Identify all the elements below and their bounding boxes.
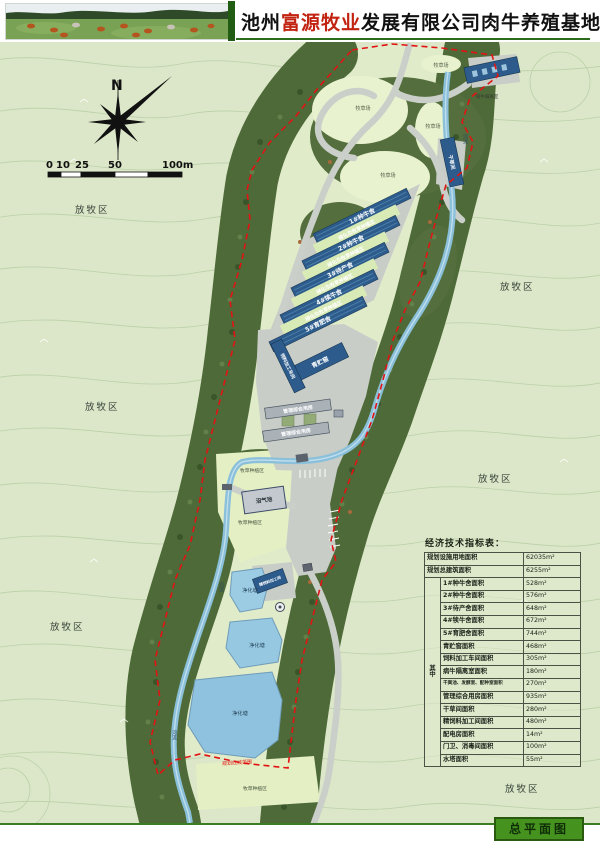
row-value: 648m² [524,603,581,616]
table-row: 4#犊牛舍面积 672m² [425,615,581,628]
planting-area-label-1: 牧草种植区 [240,467,264,474]
row-value: 14m² [524,729,581,742]
row-value: 935m² [524,691,581,704]
river-label-3: 河流 [171,729,177,741]
page: 池州富源牧业发展有限公司肉牛养殖基地规划 [0,0,600,850]
row-name: 4#犊牛舍面积 [441,615,524,628]
footer: 总平面图 [0,823,600,850]
scale-bar: 0 10 25 50 100m [46,160,193,177]
among-label: 其中 [425,578,441,767]
table-row: 饲料加工车间面积 305m² [425,653,581,666]
table-row: 配电房面积 14m² [425,729,581,742]
row-name: 门卫、消毒间面积 [441,741,524,754]
table-row: 水塔面积 55m² [425,754,581,767]
planting-area-label-2: 牧草种植区 [238,519,262,526]
row-name: 干草间面积 [441,704,524,717]
scale-tick-10: 10 [56,160,70,171]
cattle-photo [5,3,229,40]
title-prefix: 池州 [241,13,281,34]
table-row: 规划总建筑面积 6255m² [425,565,581,578]
row-name: 配电房面积 [441,729,524,742]
table-row: 病牛隔离室面积 180m² [425,666,581,679]
row-name: 水塔面积 [441,754,524,767]
pond-label-1: 净化塘 [242,586,258,594]
row-value: 55m² [524,754,581,767]
row-name: 干粪池、发酵室、配种室面积 [441,678,524,691]
table-row: 青贮窖面积 468m² [425,641,581,654]
grazing-label-6: 放牧区 [505,783,540,795]
row-value: 672m² [524,615,581,628]
pasture-field-label-4: 牧草场 [380,172,395,179]
row-value: 270m² [524,678,581,691]
title-suffix: 发展有限公司肉牛养殖基地规划 [361,13,600,34]
header: 池州富源牧业发展有限公司肉牛养殖基地规划 [0,0,600,42]
row-value: 280m² [524,704,581,717]
compass-north-label: N [111,78,123,94]
table-row: 2#种牛舍面积 576m² [425,590,581,603]
pasture-field-label-1: 牧草场 [433,62,448,69]
table-row: 3#待产舍面积 648m² [425,603,581,616]
water-tower [276,603,285,612]
grazing-label-4: 放牧区 [500,281,535,293]
scale-tick-50: 50 [108,160,122,171]
row-value: 480m² [524,716,581,729]
row-name: 1#种牛舍面积 [441,578,524,591]
pond-label-2: 净化塘 [249,641,265,649]
row-value: 305m² [524,653,581,666]
pasture-field-label-3: 牧草场 [425,123,440,130]
grazing-label-3: 放牧区 [50,621,85,633]
header-divider-bar [228,1,235,41]
title-underline [236,38,590,40]
gate-building [303,563,313,571]
row-name: 规划设施用地面积 [425,553,524,566]
table-row: 5#育肥舍面积 744m² [425,628,581,641]
row-name: 精饲料加工间面积 [441,716,524,729]
table-row: 管理综合用房面积 935m² [425,691,581,704]
grazing-label-5: 放牧区 [478,473,513,485]
page-title: 池州富源牧业发展有限公司肉牛养殖基地规划 [241,8,597,34]
row-value: 576m² [524,590,581,603]
row-name: 规划总建筑面积 [425,565,524,578]
scale-tick-25: 25 [75,160,89,171]
row-value: 528m² [524,578,581,591]
table-row: 其中 1#种牛舍面积 528m² [425,578,581,591]
row-value: 744m² [524,628,581,641]
pond-label-3: 净化塘 [232,709,248,717]
river-label-1: 河流 [462,133,468,145]
grazing-label-2: 放牧区 [85,401,120,413]
scale-tick-0: 0 [46,160,53,171]
row-value: 6255m² [524,565,581,578]
table-row: 门卫、消毒间面积 100m² [425,741,581,754]
site-plan-map: 1#种牛舍 绿化及牧草种植区 2#种牛舍 绿化及牧草种植区 3#待产舍 [0,42,600,823]
grazing-label-1: 放牧区 [75,204,110,216]
cattle-photo-image [6,4,228,39]
table-row: 精饲料加工间面积 480m² [425,716,581,729]
pasture-field-label-2: 牧草场 [355,105,370,112]
row-name: 病牛隔离室面积 [441,666,524,679]
row-name: 管理综合用房面积 [441,691,524,704]
river-label-2: 河流 [218,581,224,593]
table-row: 干草间面积 280m² [425,704,581,717]
row-value: 62035m² [524,553,581,566]
row-name: 3#待产舍面积 [441,603,524,616]
row-name: 青贮窖面积 [441,641,524,654]
table-row: 规划设施用地面积 62035m² [425,553,581,566]
row-name: 饲料加工车间面积 [441,653,524,666]
indicator-table-title: 经济技术指标表： [425,536,582,549]
planting-area-label-3: 牧草种植区 [243,785,267,792]
power-room [334,410,343,417]
row-name: 2#种牛舍面积 [441,590,524,603]
row-value: 180m² [524,666,581,679]
scale-tick-100: 100m [162,160,193,171]
row-value: 468m² [524,641,581,654]
row-value: 100m² [524,741,581,754]
plan-type-badge: 总平面图 [494,817,584,841]
row-name: 5#育肥舍面积 [441,628,524,641]
title-brand: 富源牧业 [281,13,361,34]
isolation-label: 病牛隔离室 [476,93,499,100]
indicator-table: 经济技术指标表： 规划设施用地面积 62035m² 规划总建筑面积 6255m²… [424,536,582,767]
table-row: 干粪池、发酵室、配种室面积 270m² [425,678,581,691]
